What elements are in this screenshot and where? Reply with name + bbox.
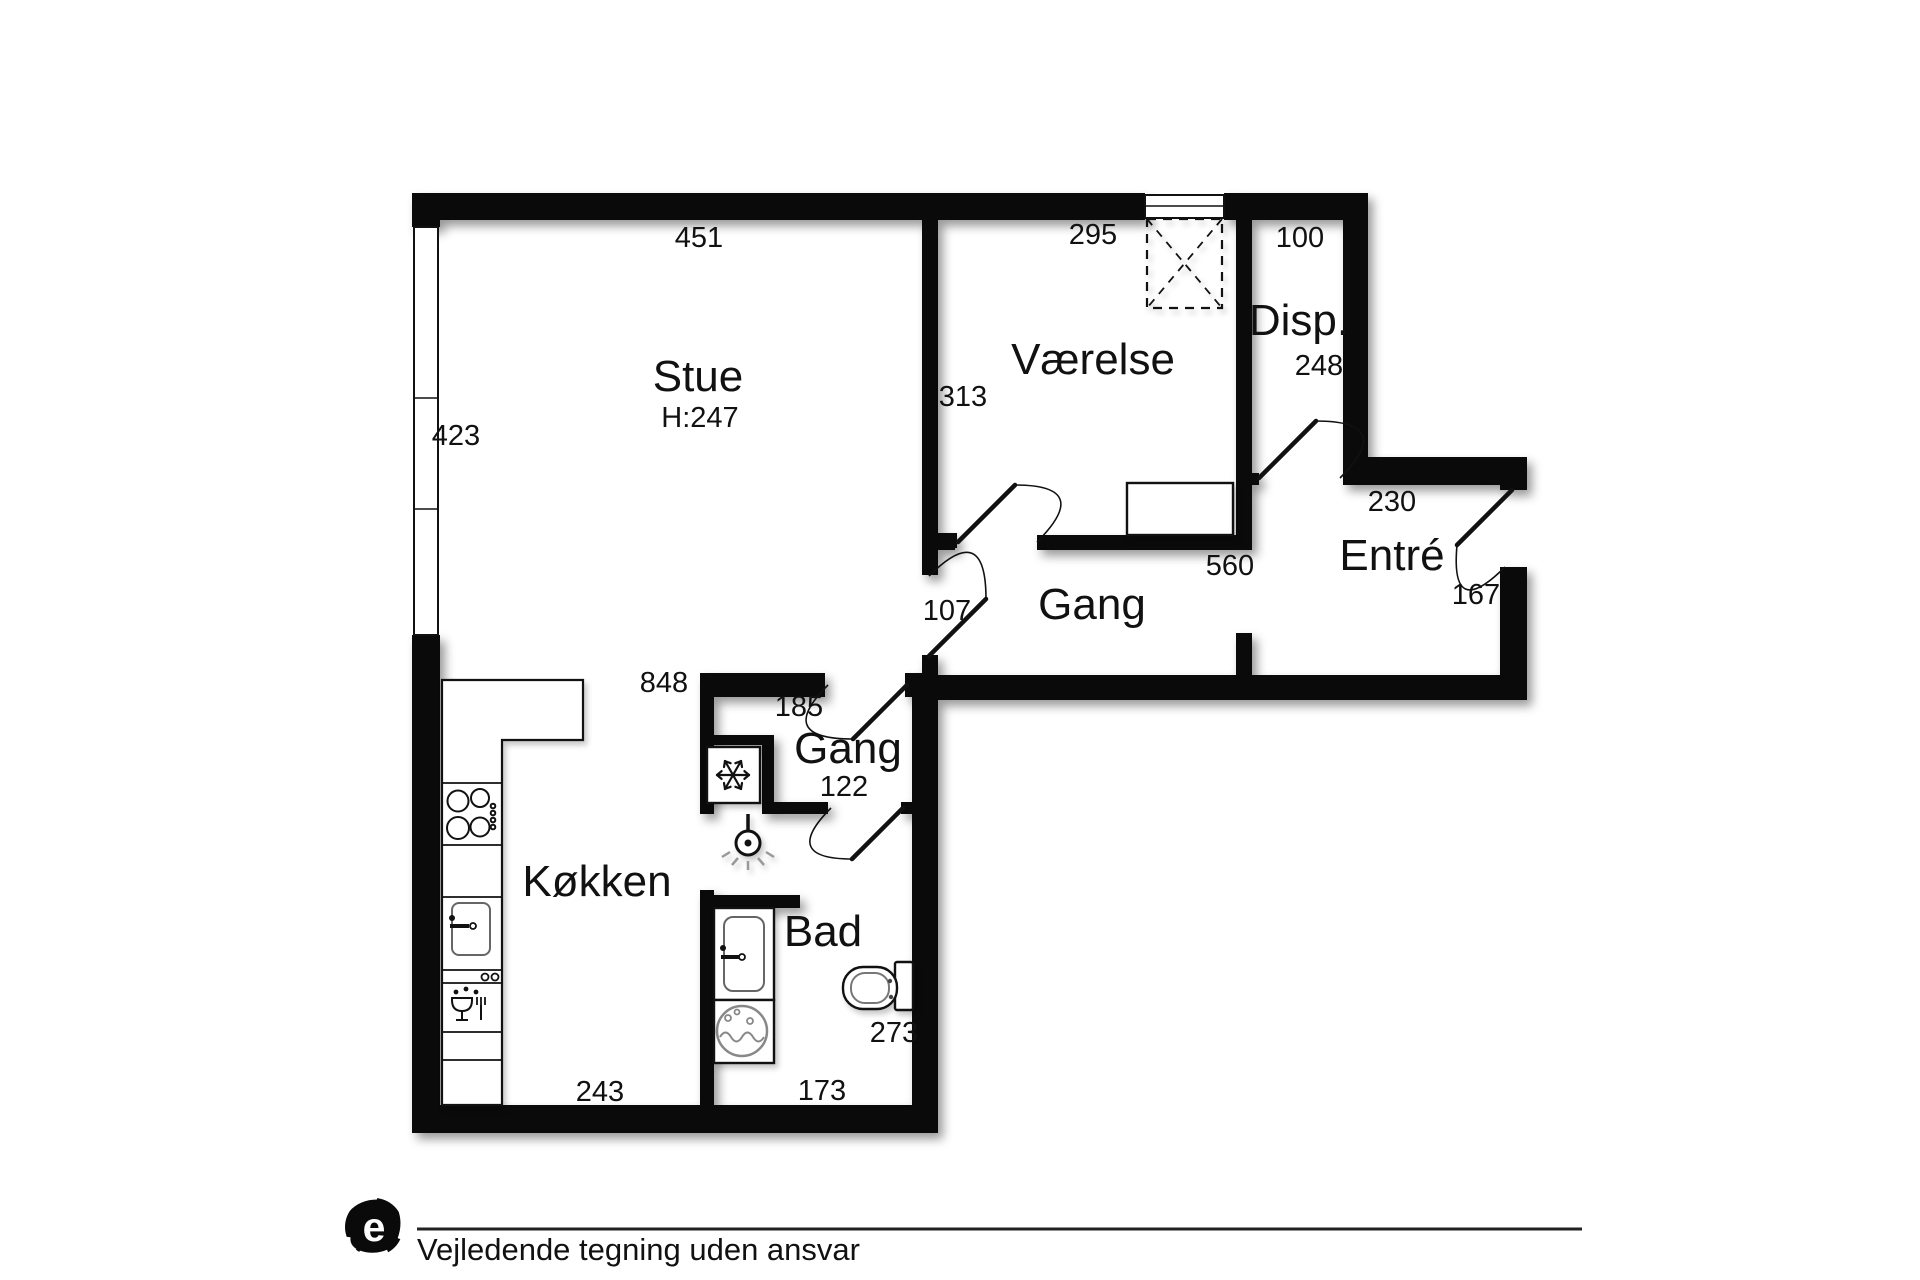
wardrobe-icon <box>1147 219 1222 308</box>
room-label-koekken: Køkken <box>522 857 671 906</box>
floorplan-drawing: Stue H:247 451 423 Værelse 295 313 Disp.… <box>0 0 1920 1280</box>
room-label-entre: Entré <box>1339 531 1444 580</box>
dresser <box>1127 483 1233 535</box>
dim-left-total: 848 <box>640 667 688 699</box>
dim-stue-window: 423 <box>432 420 480 452</box>
room-label-vaerelse: Værelse <box>1011 335 1175 384</box>
wall-vaerelse-disp <box>1236 220 1252 550</box>
footer: e Vejledende tegning uden ansvar <box>345 1197 1582 1267</box>
room-label-gang-lower: Gang <box>794 724 902 773</box>
wall-bottom <box>412 1105 938 1133</box>
wall-vaerelse-door-stub <box>922 533 957 548</box>
door-vaerelse <box>958 485 1061 542</box>
dim-bad-width: 173 <box>798 1075 846 1107</box>
toilet-icon <box>843 962 913 1010</box>
wall-bad-door <box>762 802 828 814</box>
floorplan-page: Stue H:247 451 423 Værelse 295 313 Disp.… <box>0 0 1920 1280</box>
wall-koekken-divider-low <box>700 890 714 1105</box>
disclaimer-text: Vejledende tegning uden ansvar <box>417 1232 860 1267</box>
room-label-bad: Bad <box>784 907 862 956</box>
dim-entre-top: 230 <box>1368 486 1416 518</box>
dim-disp-depth: 248 <box>1295 350 1343 382</box>
wall-gang-entre-bottom <box>938 675 1527 700</box>
wall-entre-top <box>1343 457 1527 485</box>
dim-koekken-width: 243 <box>576 1076 624 1108</box>
room-label-disp: Disp. <box>1249 296 1349 345</box>
dim-lowergang-width: 185 <box>775 691 823 723</box>
dim-gang-door: 107 <box>923 595 971 627</box>
window-top <box>1145 195 1224 218</box>
dim-entre-door: 167 <box>1452 579 1500 611</box>
dim-bad-depth: 273 <box>870 1017 918 1049</box>
washing-machine-icon <box>714 1000 774 1063</box>
ceiling-height-stue: H:247 <box>661 402 738 434</box>
wall-left-upper <box>412 193 440 227</box>
dim-disp-width: 100 <box>1276 222 1324 254</box>
dim-stue-width: 451 <box>675 222 723 254</box>
labels: Stue H:247 451 423 Værelse 295 313 Disp.… <box>432 219 1500 1108</box>
door-bad <box>810 808 903 859</box>
wall-vaerelse-bottom <box>1037 535 1236 550</box>
wall-bad-right <box>912 673 938 1133</box>
fridge-icon <box>707 747 760 803</box>
wall-left-lower <box>412 635 440 1133</box>
wall-stue-right-upper <box>922 220 938 533</box>
wall-gang-entre-stub <box>1236 633 1252 677</box>
lamp-icon <box>722 814 774 870</box>
wall-stue-right-mid <box>922 548 938 575</box>
wall-top-right <box>1224 193 1368 220</box>
company-logo: e <box>345 1197 403 1256</box>
wall-entre-right-lower <box>1500 567 1527 700</box>
room-label-stue: Stue <box>653 352 744 401</box>
dim-vaerelse-width: 295 <box>1069 219 1117 251</box>
logo-letter: e <box>363 1204 386 1250</box>
dim-vaerelse-depth: 313 <box>939 381 987 413</box>
dim-gang-length: 560 <box>1206 550 1254 582</box>
dim-lowergang-depth: 122 <box>820 771 868 803</box>
walls <box>412 193 1527 1133</box>
wall-top-left <box>412 193 1145 220</box>
room-label-gang-upper: Gang <box>1038 580 1146 629</box>
windows <box>414 195 1224 635</box>
bathroom-sink-icon <box>714 908 774 1000</box>
